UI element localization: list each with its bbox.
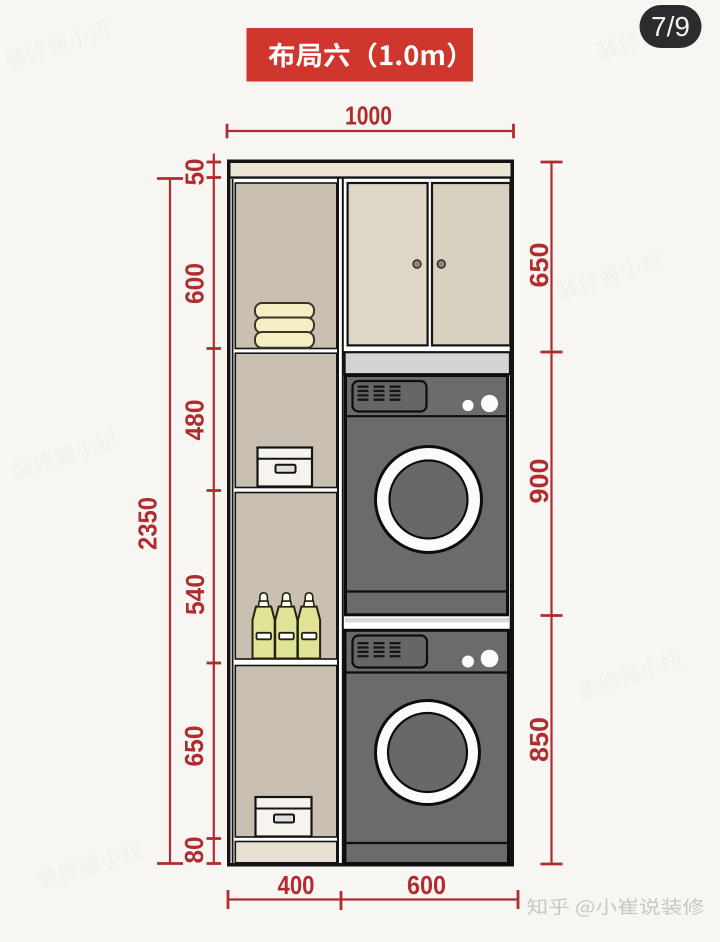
svg-text:1000: 1000	[345, 101, 392, 131]
svg-text:600: 600	[407, 870, 446, 900]
svg-text:50: 50	[180, 159, 210, 186]
svg-text:80: 80	[179, 837, 209, 864]
svg-text:650: 650	[179, 726, 209, 767]
svg-text:2350: 2350	[133, 497, 163, 550]
svg-text:600: 600	[180, 263, 210, 304]
svg-text:850: 850	[524, 717, 554, 762]
svg-text:540: 540	[180, 574, 210, 615]
svg-text:7/9: 7/9	[651, 11, 690, 42]
svg-text:900: 900	[524, 459, 554, 504]
svg-text:480: 480	[180, 400, 210, 441]
svg-text:650: 650	[524, 243, 554, 288]
svg-text:400: 400	[278, 870, 315, 900]
